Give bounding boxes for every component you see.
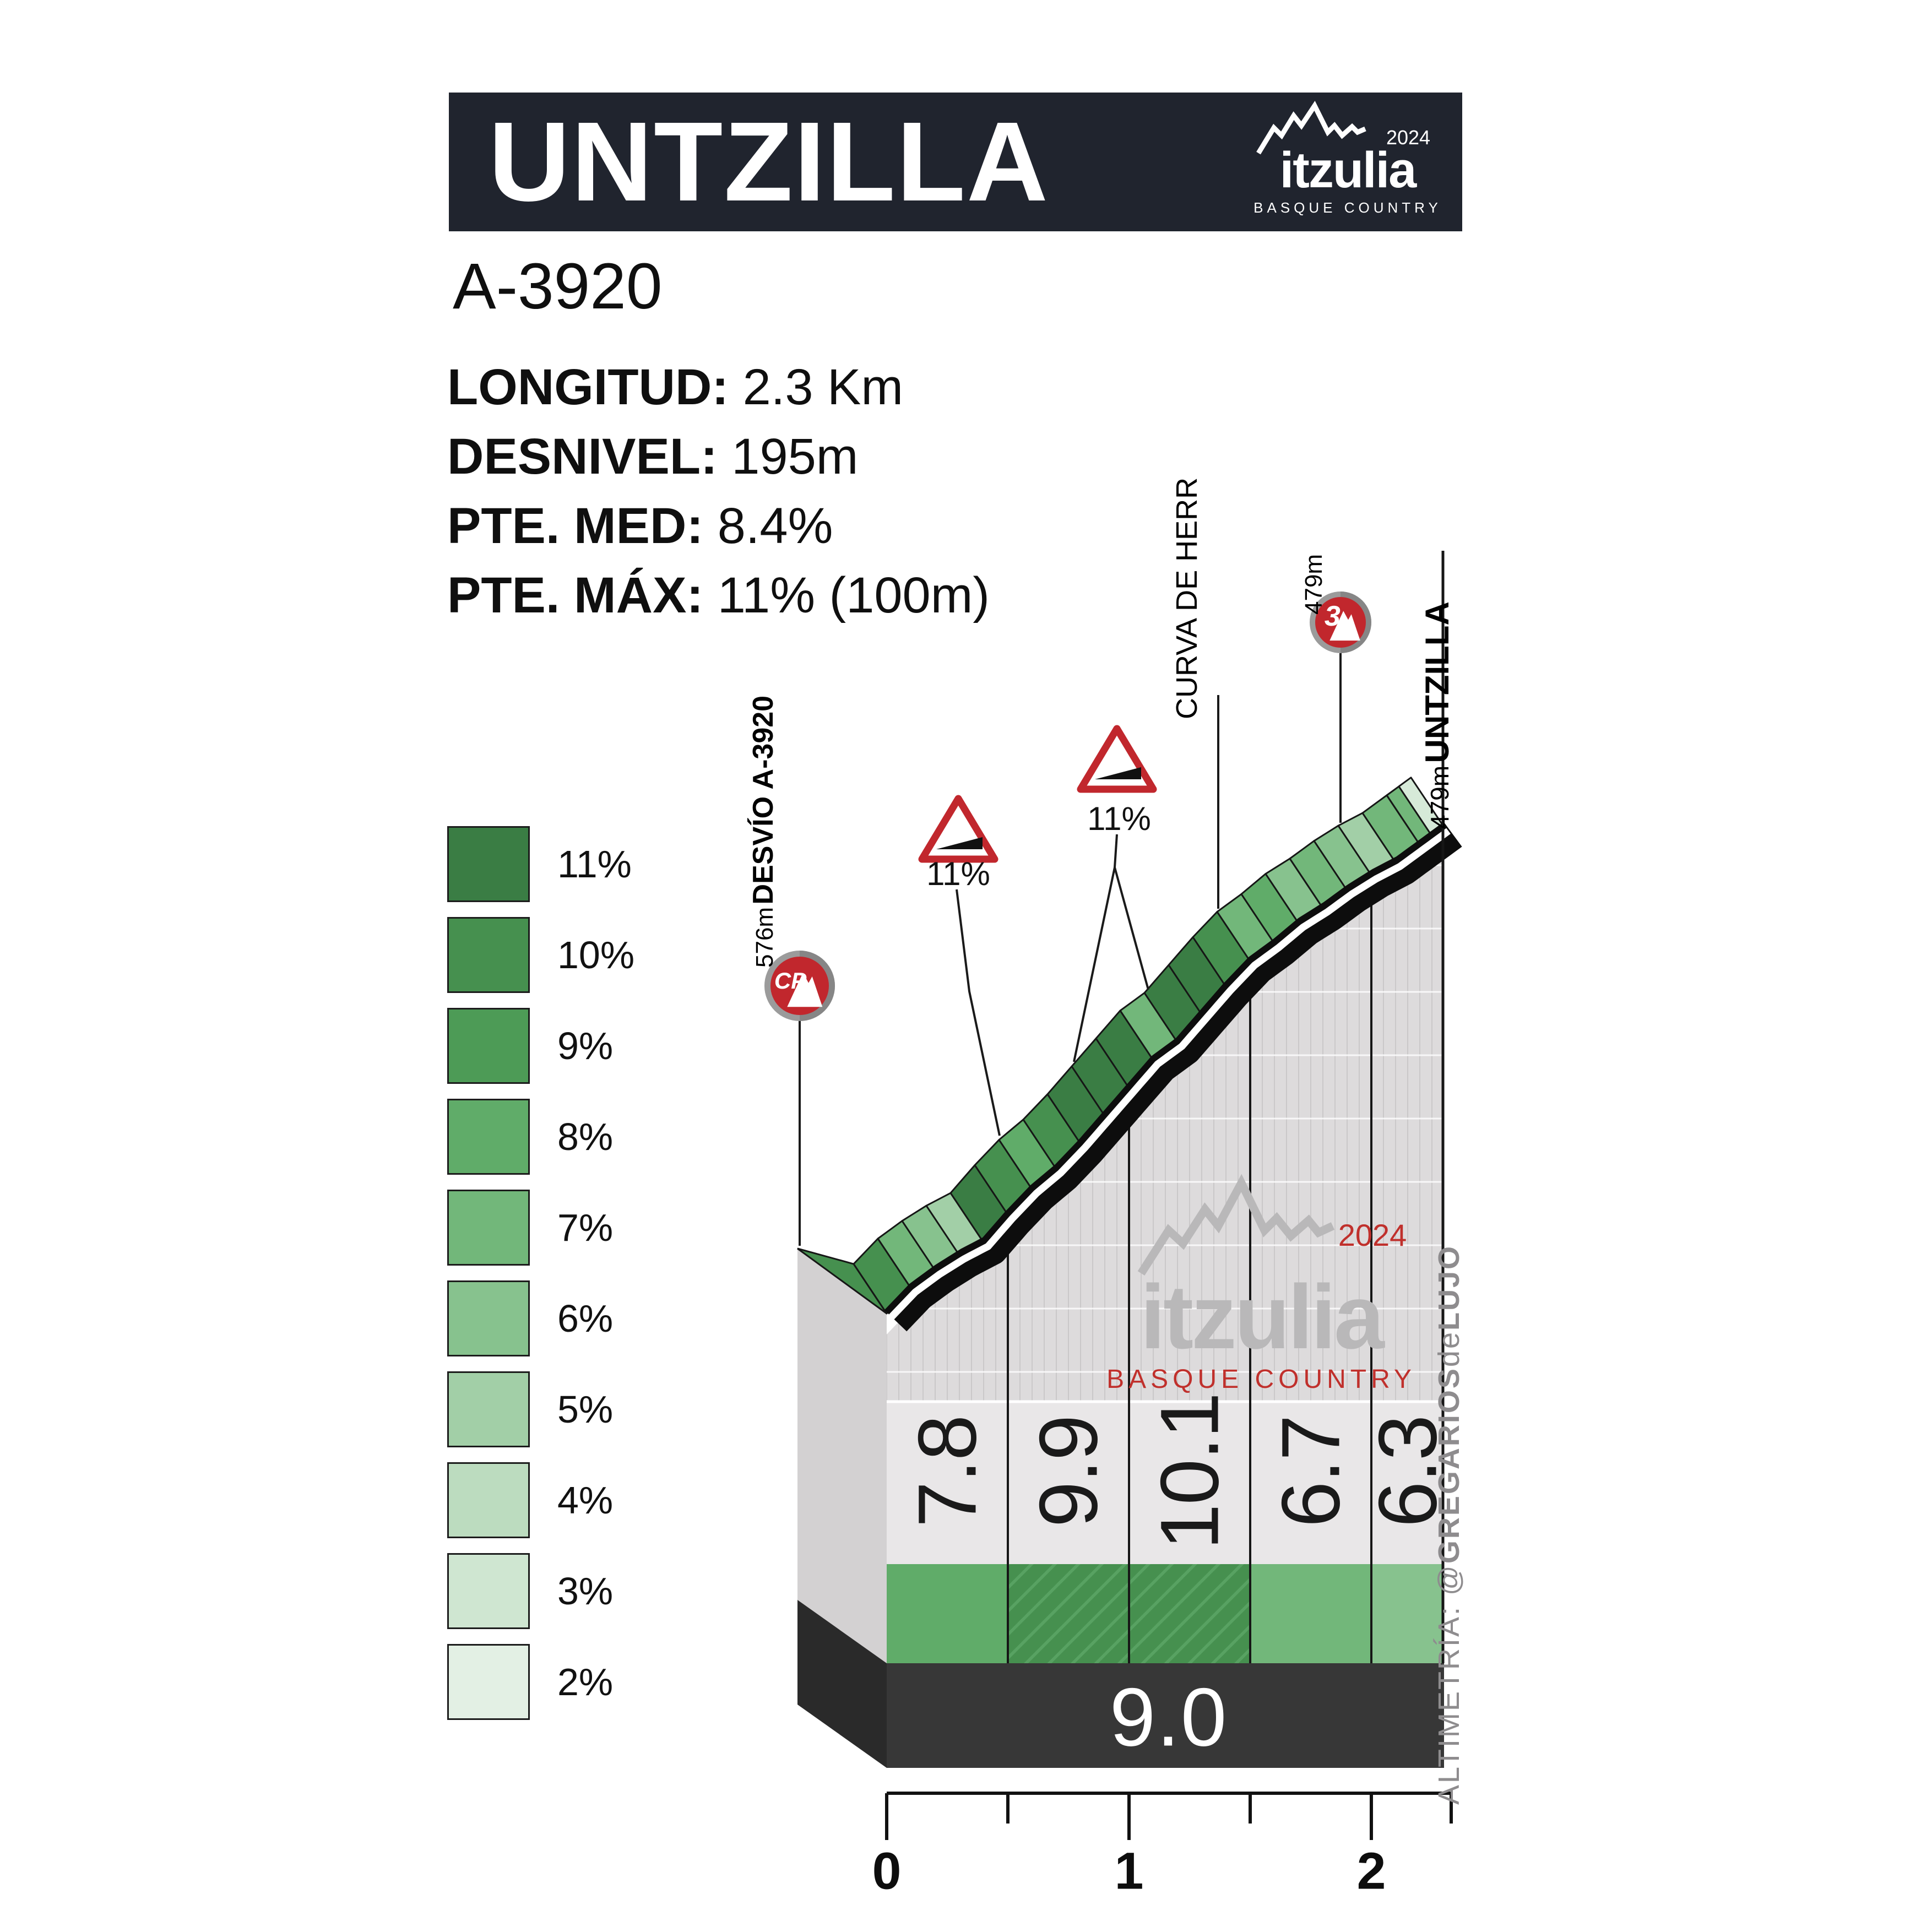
stat-desnivel-label: DESNIVEL: bbox=[447, 428, 718, 485]
stat-longitud-value: 2.3 Km bbox=[743, 359, 903, 415]
section-avg-cell-3 bbox=[1129, 1564, 1250, 1663]
watermark-region: BASQUE COUNTRY bbox=[1106, 1365, 1416, 1394]
legend-swatch-5 bbox=[447, 1371, 530, 1447]
legend-label-10: 10% bbox=[557, 917, 634, 993]
stat-pte-max: PTE. MÁX: 11% (100m) bbox=[447, 561, 990, 630]
section-avg-cell-2 bbox=[1008, 1564, 1129, 1663]
sign2-label: 11% bbox=[1036, 800, 1202, 838]
legend-label-2: 2% bbox=[557, 1644, 613, 1720]
stat-longitud-label: LONGITUD: bbox=[447, 359, 729, 415]
itzulia-logo: 2024 itzulia BASQUE COUNTRY bbox=[1243, 100, 1452, 224]
legend-label-9: 9% bbox=[557, 1008, 613, 1084]
legend-label-5: 5% bbox=[557, 1371, 613, 1447]
legend-swatch-8 bbox=[447, 1099, 530, 1175]
start-elevation: 576m bbox=[751, 907, 778, 968]
section-avg-4: 6.7 bbox=[1263, 1416, 1359, 1528]
logo-region: BASQUE COUNTRY bbox=[1253, 199, 1442, 216]
credit-prefix: ALTIMETRÍA: @ bbox=[1432, 1564, 1466, 1805]
summit-elevation: 479m bbox=[1425, 766, 1454, 829]
section-avg-3: 10.1 bbox=[1142, 1393, 1238, 1550]
credit-lujo: LUJO bbox=[1432, 1245, 1466, 1331]
profile-chart: 2024 itzulia BASQUE COUNTRY CP3 bbox=[0, 0, 1932, 1932]
credit-de: de bbox=[1432, 1331, 1466, 1367]
stat-desnivel: DESNIVEL: 195m bbox=[447, 422, 990, 491]
section-avg-1: 7.8 bbox=[900, 1416, 995, 1528]
stat-pte-med: PTE. MED: 8.4% bbox=[447, 491, 990, 561]
credit-gregarios: GREGARIOS bbox=[1432, 1367, 1466, 1564]
stat-longitud: LONGITUD: 2.3 Km bbox=[447, 352, 990, 422]
legend-swatch-10 bbox=[447, 917, 530, 993]
start-label: 576m DESVÍO A-3920 bbox=[749, 696, 778, 968]
logo-brand: itzulia bbox=[1280, 142, 1418, 198]
legend-swatch-3 bbox=[447, 1553, 530, 1629]
watermark-brand: itzulia bbox=[1140, 1266, 1385, 1367]
legend-label-4: 4% bbox=[557, 1462, 613, 1538]
section-avg-cell-1 bbox=[887, 1564, 1008, 1663]
curve-label: CURVA DE HERR bbox=[1172, 477, 1202, 719]
stats-block: LONGITUD: 2.3 Km DESNIVEL: 195m PTE. MED… bbox=[447, 352, 990, 630]
gradient-sign-2 bbox=[1081, 729, 1153, 789]
legend-label-11: 11% bbox=[557, 826, 632, 902]
stat-pte-max-label: PTE. MÁX: bbox=[447, 567, 703, 623]
sign1-label: 11% bbox=[876, 855, 1041, 893]
section-avg-2: 9.9 bbox=[1021, 1416, 1116, 1528]
cat3-elevation-label: 479m bbox=[1302, 554, 1326, 615]
legend-swatch-7 bbox=[447, 1190, 530, 1266]
sign1-connector bbox=[957, 889, 1000, 1136]
watermark-year: 2024 bbox=[1338, 1218, 1407, 1252]
stat-pte-max-value: 11% (100m) bbox=[718, 567, 990, 623]
credit-line: ALTIMETRÍA: @GREGARIOSdeLUJO bbox=[1432, 1245, 1466, 1805]
legend-swatch-6 bbox=[447, 1280, 530, 1356]
climb-profile-poster: 2024 itzulia BASQUE COUNTRY CP3 UNTZILLA… bbox=[0, 0, 1932, 1932]
legend-label-7: 7% bbox=[557, 1190, 613, 1266]
total-average: 9.0 bbox=[1110, 1670, 1228, 1765]
summit-label: 479m UNTZILLA bbox=[1421, 601, 1454, 829]
header-bar: UNTZILLA 2024 itzulia BASQUE COUNTRY bbox=[449, 93, 1462, 231]
left-side-face bbox=[797, 1249, 887, 1663]
road-reference: A-3920 bbox=[453, 249, 663, 324]
gradient-sign-1 bbox=[922, 799, 995, 859]
legend-swatch-2 bbox=[447, 1644, 530, 1720]
axis-tick-2: 2 bbox=[1357, 1842, 1386, 1902]
legend-label-8: 8% bbox=[557, 1099, 613, 1175]
legend-swatch-4 bbox=[447, 1462, 530, 1538]
legend-swatch-9 bbox=[447, 1008, 530, 1084]
summit-name: UNTZILLA bbox=[1419, 601, 1456, 763]
stat-desnivel-value: 195m bbox=[731, 428, 858, 485]
page-title: UNTZILLA bbox=[449, 97, 1049, 227]
start-name: DESVÍO A-3920 bbox=[747, 696, 779, 905]
legend-label-6: 6% bbox=[557, 1280, 613, 1356]
stat-pte-med-label: PTE. MED: bbox=[447, 498, 703, 554]
axis-tick-1: 1 bbox=[1115, 1842, 1144, 1902]
section-avg-cell-4 bbox=[1250, 1564, 1371, 1663]
legend-swatch-11 bbox=[447, 826, 530, 902]
axis-tick-0: 0 bbox=[872, 1842, 902, 1902]
stat-pte-med-value: 8.4% bbox=[718, 498, 833, 554]
legend-label-3: 3% bbox=[557, 1553, 613, 1629]
sign2-connector-b bbox=[1115, 867, 1148, 990]
